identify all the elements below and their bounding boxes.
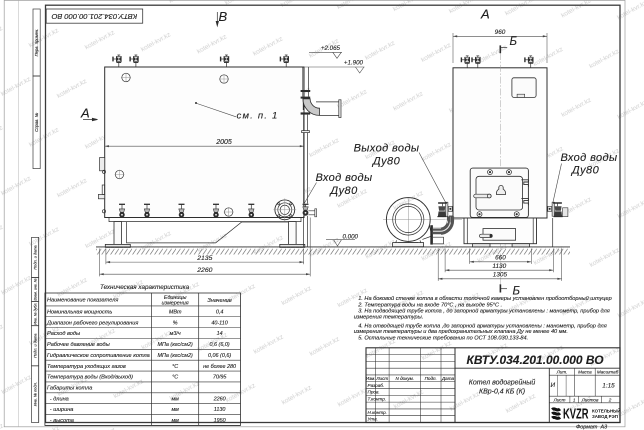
svg-text:Утв.: Утв. <box>368 417 378 422</box>
svg-text:Перв. примен.: Перв. примен. <box>34 29 39 57</box>
svg-text:Подп. и дата: Подп. и дата <box>33 333 38 358</box>
svg-text:1130: 1130 <box>492 263 506 270</box>
svg-text:КВТУ.034.201.00.000 ВО: КВТУ.034.201.00.000 ВО <box>51 12 137 21</box>
svg-text:Выход воды: Выход воды <box>354 143 420 155</box>
svg-text:Инв. № дубл.: Инв. № дубл. <box>34 303 38 325</box>
svg-text:Температура воды (Вход/выход): Температура воды (Вход/выход) <box>47 375 133 381</box>
svg-text:КВр-0,4 КБ (К): КВр-0,4 КБ (К) <box>479 389 525 396</box>
svg-text:А: А <box>80 106 90 121</box>
svg-text:Вход воды: Вход воды <box>561 152 618 164</box>
svg-text:см. п. 1: см. п. 1 <box>237 110 279 121</box>
svg-text:Расход воды: Расход воды <box>47 331 80 337</box>
svg-text:мм: мм <box>171 407 179 413</box>
svg-text:Вход воды: Вход воды <box>316 172 373 184</box>
svg-text:0,4: 0,4 <box>216 309 224 315</box>
svg-text:1305: 1305 <box>493 272 508 279</box>
svg-text:Справ. №: Справ. № <box>34 112 39 131</box>
svg-text:1: 1 <box>573 397 576 402</box>
svg-text:N докум.: N докум. <box>396 376 415 381</box>
svg-text:Котел водогрейный: Котел водогрейный <box>469 379 536 387</box>
svg-text:не более 280: не более 280 <box>203 364 236 370</box>
svg-text:Пров.: Пров. <box>368 390 380 395</box>
svg-text:Взам. инв. №: Взам. инв. № <box>34 278 38 300</box>
svg-text:Лит.: Лит. <box>556 370 568 375</box>
svg-text:- ширина: - ширина <box>47 407 73 413</box>
svg-text:Масштаб: Масштаб <box>597 370 619 375</box>
svg-text:0,06 (0,6): 0,06 (0,6) <box>208 353 231 359</box>
svg-text:40-110: 40-110 <box>211 320 227 326</box>
svg-text:Значение: Значение <box>207 298 232 304</box>
svg-text:мм: мм <box>171 396 179 402</box>
svg-text:Н.контр.: Н.контр. <box>368 410 387 415</box>
svg-text:2135: 2135 <box>196 255 212 262</box>
svg-text:- длина: - длина <box>47 396 69 402</box>
svg-text:МВт: МВт <box>169 309 182 315</box>
svg-text:+2.065: +2.065 <box>321 45 341 52</box>
svg-text:Наименование показателя: Наименование показателя <box>47 298 118 304</box>
svg-text:%: % <box>173 320 178 326</box>
svg-text:Рабочее давление воды: Рабочее давление воды <box>47 342 110 348</box>
svg-text:МПа (кгс/см2): МПа (кгс/см2) <box>158 353 193 359</box>
svg-text:960: 960 <box>495 29 506 36</box>
svg-text:Техническая характеристика: Техническая характеристика <box>100 284 190 291</box>
svg-text:°С: °С <box>172 364 178 370</box>
svg-text:2260: 2260 <box>213 396 226 402</box>
svg-text:измерения температуры.: измерения температуры. <box>354 315 424 321</box>
svg-text:МПа (кгс/см2): МПа (кгс/см2) <box>158 342 193 348</box>
svg-text:Номинальная мощность: Номинальная мощность <box>47 309 112 315</box>
svg-text:Диапазон рабочего регулировани: Диапазон рабочего регулирования <box>46 320 138 326</box>
svg-text:2. Температура воды на входе: 2. Температура воды на входе 70°С , на в… <box>357 302 502 308</box>
svg-text:мм: мм <box>171 418 179 424</box>
svg-text:0.000: 0.000 <box>343 233 359 240</box>
svg-text:Температура уходящих газов: Температура уходящих газов <box>47 364 126 370</box>
svg-text:измерения температуры и два пр: измерения температуры и два предохраните… <box>354 329 568 335</box>
svg-text:1950: 1950 <box>214 418 226 424</box>
svg-text:м3/ч: м3/ч <box>170 331 181 337</box>
svg-text:70/95: 70/95 <box>213 375 227 381</box>
svg-text:1. На боковой стенке котла в: 1. На боковой стенке котла в области топ… <box>358 295 612 302</box>
svg-text:Формат: Формат <box>576 425 598 430</box>
svg-text:ЗАВОД РЭП: ЗАВОД РЭП <box>592 414 618 419</box>
svg-text:Дата: Дата <box>441 376 455 381</box>
svg-text:Инв. № подл.: Инв. № подл. <box>33 382 38 406</box>
svg-text:И: И <box>551 382 556 389</box>
svg-text:Гидравлическое сопротивление к: Гидравлическое сопротивление котла <box>47 353 150 359</box>
svg-text:2: 2 <box>608 397 612 402</box>
svg-text:+1.900: +1.900 <box>344 59 364 66</box>
svg-text:14: 14 <box>217 331 223 337</box>
svg-text:Изм.: Изм. <box>366 376 376 381</box>
svg-text:5. Остальные технические треб: 5. Остальные технические требования по О… <box>358 336 528 342</box>
svg-text:Подп.: Подп. <box>425 376 437 381</box>
svg-text:0,6 (6,0): 0,6 (6,0) <box>210 342 230 348</box>
svg-text:1:15: 1:15 <box>602 383 615 390</box>
svg-text:2005: 2005 <box>215 139 232 146</box>
svg-text:Т.контр.: Т.контр. <box>368 396 387 401</box>
svg-text:Лист: Лист <box>553 397 566 402</box>
svg-text:КОТЕЛЬНЫЙ: КОТЕЛЬНЫЙ <box>592 408 621 413</box>
svg-text:1130: 1130 <box>214 407 226 413</box>
svg-text:Подп. и дата: Подп. и дата <box>33 244 38 269</box>
svg-text:Масса: Масса <box>578 370 592 375</box>
svg-text:В: В <box>219 9 228 24</box>
svg-text:КВТУ.034.201.00.000 ВО: КВТУ.034.201.00.000 ВО <box>467 354 604 367</box>
svg-text:Разраб.: Разраб. <box>368 383 385 388</box>
svg-text:А3: А3 <box>600 425 608 430</box>
svg-text:Габариты котла: Габариты котла <box>47 386 92 392</box>
svg-text:- высота: - высота <box>47 418 74 424</box>
svg-text:660: 660 <box>495 255 506 262</box>
svg-text:Ду80: Ду80 <box>371 155 401 167</box>
svg-text:измерения: измерения <box>162 301 189 307</box>
svg-text:KVZR: KVZR <box>563 405 589 422</box>
svg-text:Б: Б <box>510 36 518 48</box>
svg-text:Лист: Лист <box>375 376 388 381</box>
svg-text:Листов: Листов <box>581 397 599 402</box>
svg-text:А: А <box>480 7 490 22</box>
svg-text:°С: °С <box>172 375 178 381</box>
svg-text:Ду80: Ду80 <box>328 185 358 197</box>
svg-text:2260: 2260 <box>196 267 212 274</box>
svg-text:Ду80: Ду80 <box>570 165 600 177</box>
